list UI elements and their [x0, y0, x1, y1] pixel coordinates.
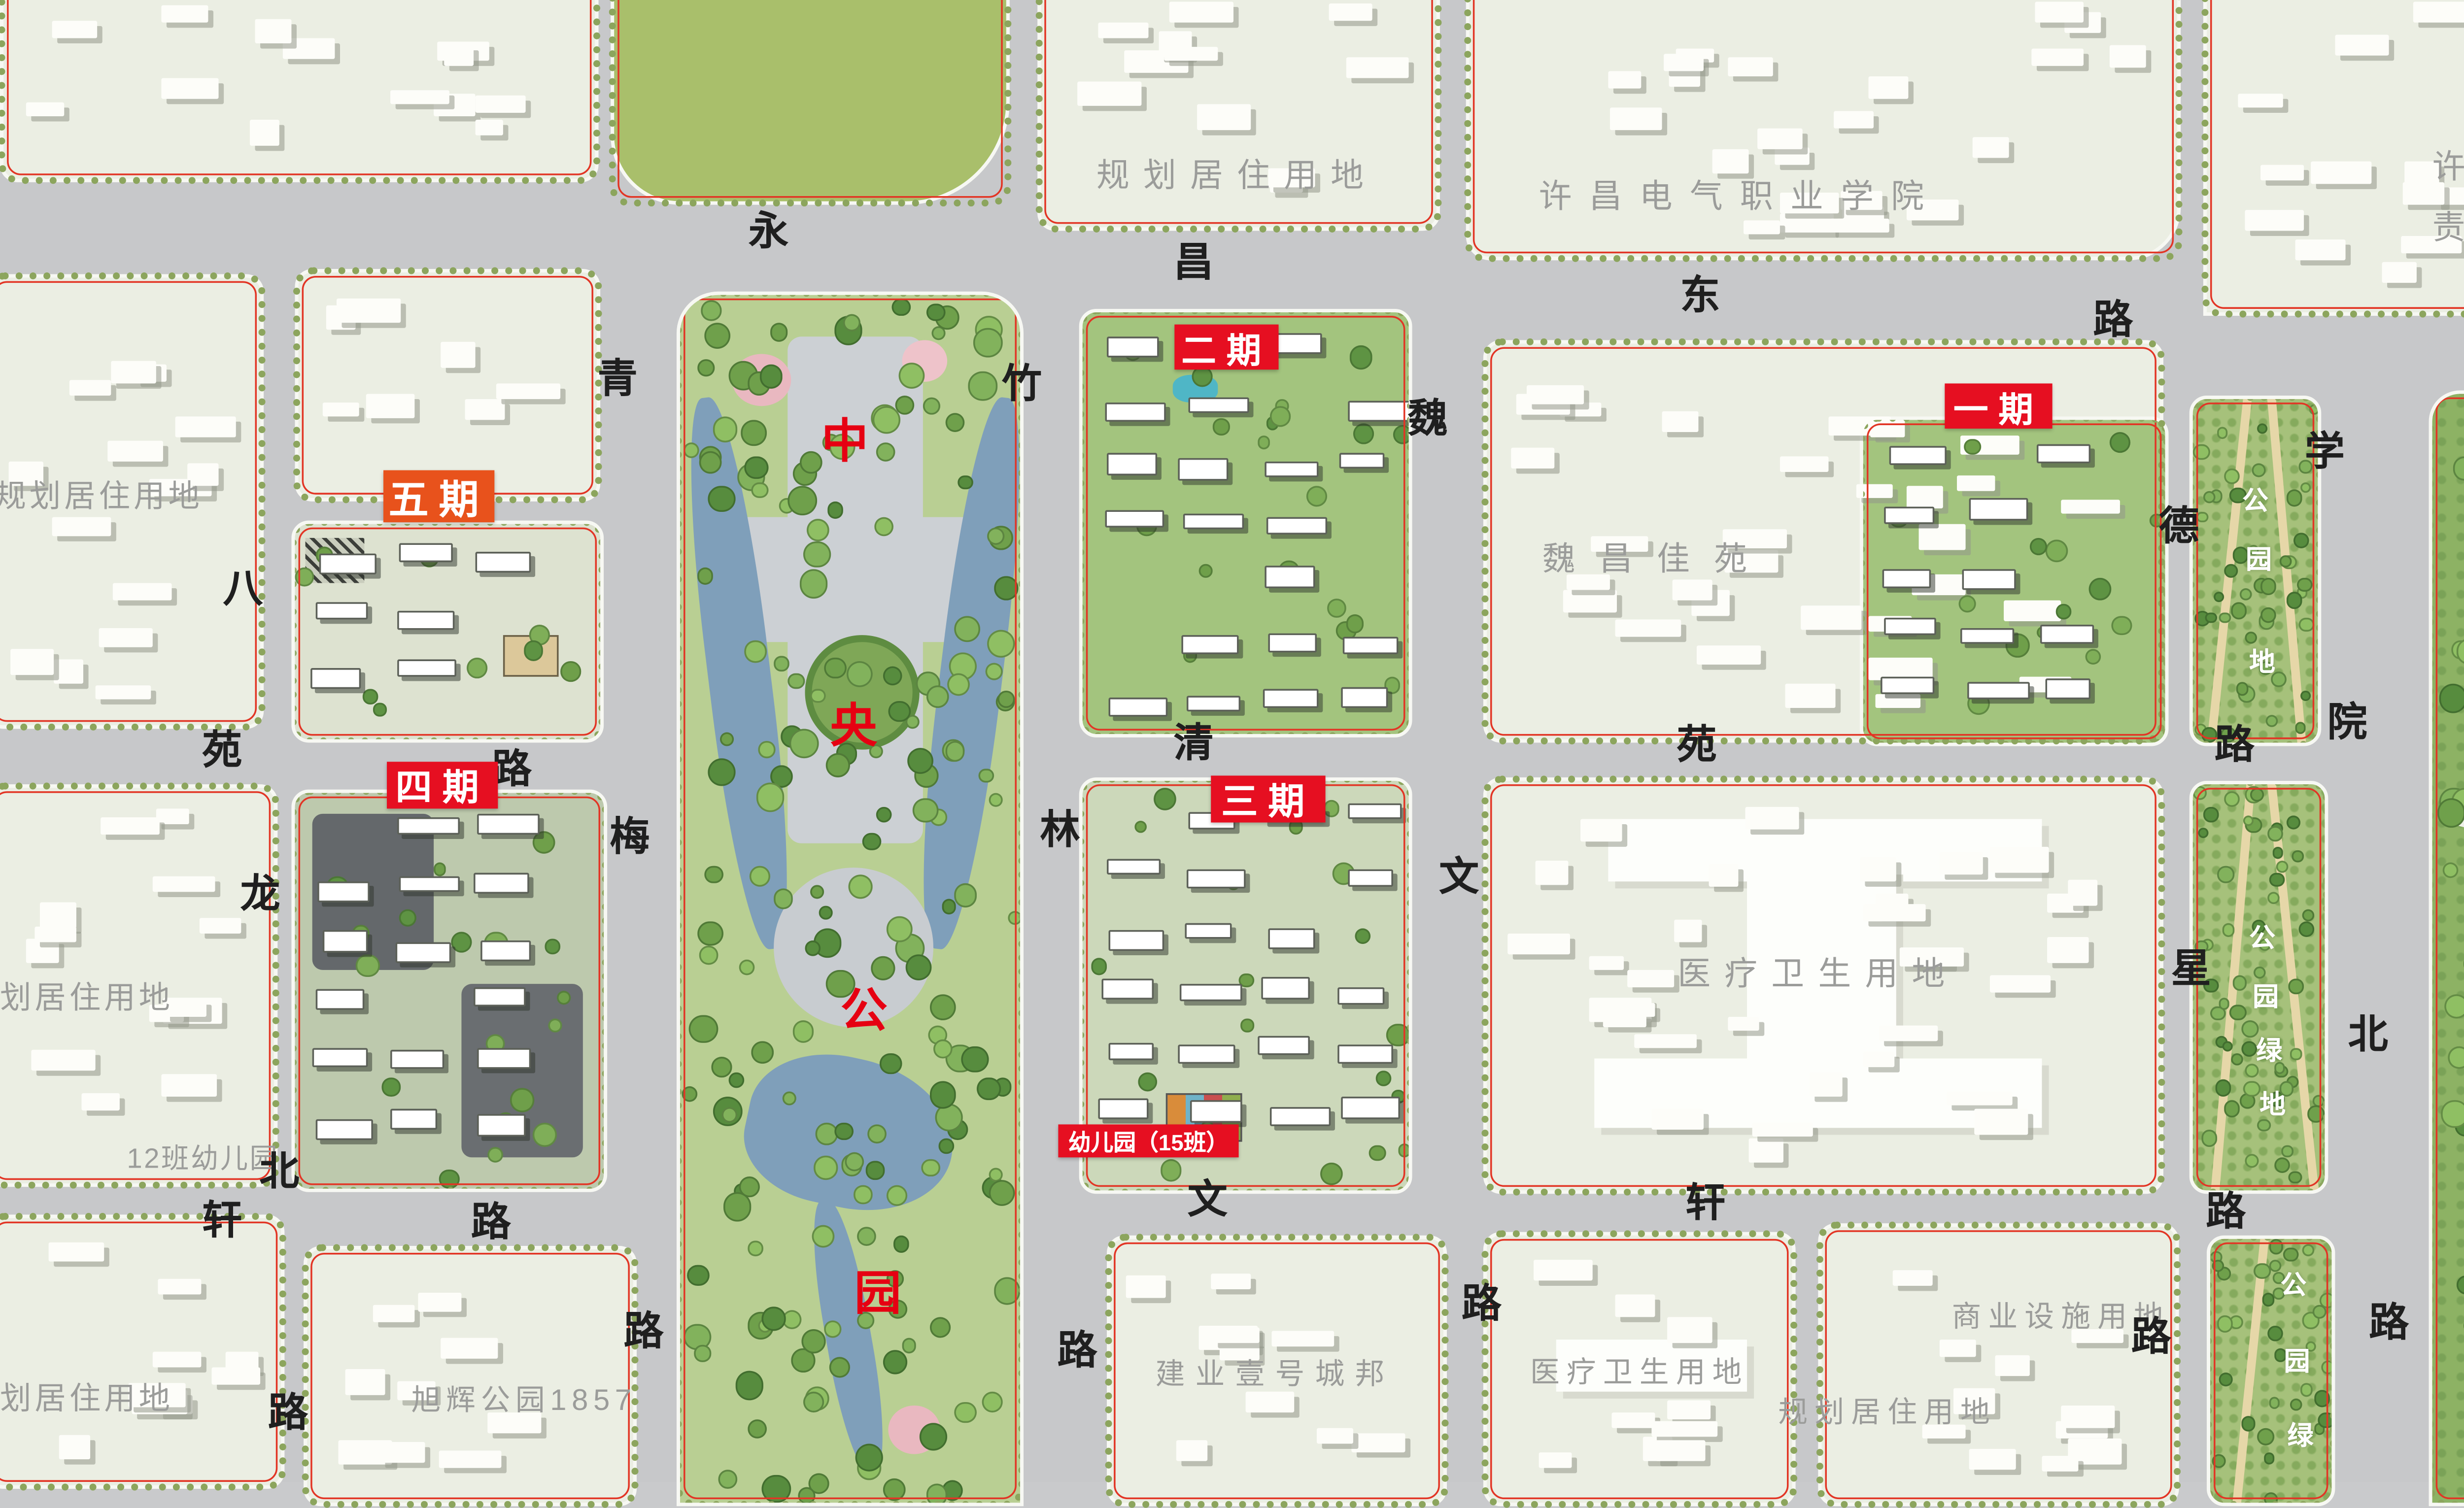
- building-footprint: [1186, 922, 1232, 939]
- building-footprint: [1860, 858, 1896, 882]
- greenbelt-label-char: 园: [2246, 540, 2272, 577]
- building-footprint: [1652, 1420, 1717, 1437]
- building-footprint: [1178, 459, 1229, 481]
- tree: [2263, 1453, 2275, 1465]
- building-footprint: [1709, 863, 1738, 886]
- tree: [356, 954, 380, 978]
- building-footprint: [1651, 1108, 1704, 1130]
- land-use-label: 规划居住用地: [1778, 1387, 1997, 1431]
- building-footprint: [1098, 23, 1149, 38]
- tree: [702, 300, 722, 320]
- building-footprint: [1078, 82, 1142, 105]
- tree: [989, 793, 1003, 807]
- phase-badge: 一期: [1945, 383, 2052, 429]
- tree: [913, 799, 938, 823]
- tree: [2302, 1244, 2315, 1257]
- building-footprint: [2295, 238, 2345, 260]
- building-footprint: [1264, 566, 1314, 588]
- building-footprint: [316, 1119, 373, 1139]
- tree: [1270, 405, 1290, 426]
- land-use-label: 划居住用地: [0, 1374, 173, 1420]
- tree: [2056, 604, 2071, 619]
- tree: [2453, 457, 2464, 480]
- building-footprint: [397, 660, 457, 676]
- building-footprint: [1892, 1270, 1933, 1286]
- road-name-char: 昌: [1174, 229, 1214, 288]
- tree: [988, 630, 1016, 658]
- road-name-char: 轩: [202, 1187, 242, 1246]
- building-footprint: [1674, 920, 1702, 943]
- tree: [745, 457, 768, 480]
- building-footprint: [1673, 579, 1712, 601]
- building-footprint: [1268, 928, 1315, 950]
- tree: [2201, 1130, 2218, 1147]
- tree: [2241, 1416, 2256, 1431]
- building-footprint: [418, 1293, 462, 1312]
- building-footprint: [1267, 633, 1318, 653]
- building-footprint: [2041, 1456, 2078, 1472]
- building-footprint: [10, 649, 54, 674]
- tree: [2232, 975, 2247, 990]
- building-footprint: [107, 441, 162, 461]
- land-use-label: 规划居住用地: [1096, 150, 1377, 197]
- tree: [1958, 595, 1976, 612]
- luming-lake-park: [2429, 390, 2464, 1506]
- building-footprint: [398, 543, 452, 563]
- tree: [548, 1019, 562, 1033]
- building-footprint: [1342, 636, 1399, 654]
- tree: [2211, 1454, 2225, 1468]
- tree: [1369, 1144, 1386, 1161]
- tree: [2442, 1101, 2464, 1128]
- parcel-lawn: [611, 0, 1010, 205]
- building-footprint: [2110, 45, 2147, 67]
- tree: [2276, 860, 2289, 872]
- building-footprint: [1776, 147, 1810, 166]
- building-footprint: [1969, 499, 2027, 520]
- building-footprint: [161, 78, 218, 99]
- building-footprint: [2381, 261, 2416, 283]
- building-footprint: [1668, 1317, 1712, 1342]
- road-name-char: 清: [1174, 710, 1214, 769]
- greenbelt-label-char: 地: [2259, 1085, 2286, 1122]
- tree: [2292, 850, 2303, 862]
- tree: [788, 486, 817, 515]
- greenbelt-label-char: 园: [2253, 978, 2279, 1014]
- tree: [814, 1155, 838, 1179]
- tree: [2257, 423, 2267, 434]
- tree: [711, 1057, 731, 1078]
- tree: [1154, 788, 1177, 811]
- greenbelt-label-char: 公: [2249, 919, 2275, 955]
- building-footprint: [2261, 165, 2304, 180]
- building-footprint: [1833, 110, 1875, 129]
- building-footprint: [2312, 162, 2371, 184]
- building-footprint: [366, 394, 415, 418]
- building-footprint: [1347, 57, 1408, 78]
- tree: [2313, 1306, 2327, 1319]
- tree: [901, 1338, 917, 1353]
- land-use-label: 许昌烟草机械: [2432, 141, 2464, 188]
- building-footprint: [1197, 104, 1251, 130]
- master-plan-map: 规划居住用地许昌电气职业学院许昌烟草机械责任有限公司规划居住用地划居住用地12班…: [0, 0, 2464, 1482]
- greenbelt-label-char: 绿: [2288, 1417, 2314, 1453]
- building-footprint: [1989, 847, 2049, 872]
- road-name-char: 路: [1462, 1270, 1502, 1329]
- land-use-label: 责任有限公司: [2432, 202, 2464, 249]
- tree: [2217, 428, 2227, 438]
- building-footprint: [1628, 970, 1674, 987]
- building-footprint: [69, 379, 110, 396]
- road-name-char: 路: [2215, 711, 2255, 771]
- building-footprint: [374, 1305, 414, 1323]
- road-name-char: 魏: [1408, 385, 1448, 444]
- building-footprint: [1743, 221, 1780, 235]
- tree: [700, 946, 719, 965]
- tree: [2216, 1316, 2232, 1332]
- building-footprint: [2037, 445, 2091, 463]
- building-footprint: [1511, 448, 1554, 469]
- parcel-top-left: [0, 0, 599, 182]
- tree: [749, 866, 770, 887]
- tree: [688, 1265, 709, 1286]
- tree: [2216, 1080, 2231, 1096]
- building-footprint: [310, 668, 360, 689]
- tree: [968, 372, 997, 401]
- tree: [2254, 1263, 2270, 1279]
- tree: [930, 1081, 957, 1108]
- tree: [945, 413, 964, 433]
- building-footprint: [1995, 1355, 2031, 1376]
- building-footprint: [31, 1050, 96, 1071]
- road-name-char: 德: [2159, 493, 2199, 552]
- building-footprint: [1540, 1453, 1572, 1468]
- building-footprint: [1663, 54, 1704, 71]
- tree: [2438, 683, 2464, 712]
- building-footprint: [1108, 1042, 1153, 1060]
- tree: [2267, 827, 2283, 842]
- building-footprint: [1108, 697, 1168, 716]
- building-footprint: [52, 516, 111, 536]
- tree: [2225, 791, 2240, 806]
- central-park-name-char: 园: [855, 1255, 901, 1323]
- tree: [892, 298, 911, 316]
- tree: [988, 1179, 1015, 1206]
- tree: [561, 661, 582, 682]
- tree: [762, 1307, 786, 1331]
- building-footprint: [113, 584, 171, 600]
- building-footprint: [1338, 452, 1384, 469]
- tree: [739, 960, 755, 976]
- parcel-planned-residential-west2: [0, 1215, 284, 1489]
- building-footprint: [1348, 402, 1410, 422]
- tree: [981, 1391, 1003, 1413]
- building-footprint: [1956, 475, 1995, 491]
- building-footprint: [1507, 934, 1570, 954]
- tree: [434, 863, 446, 875]
- tree: [2443, 863, 2459, 878]
- building-footprint: [481, 940, 532, 961]
- tree: [2302, 910, 2315, 922]
- building-footprint: [1212, 1328, 1260, 1343]
- building-footprint: [152, 1352, 202, 1368]
- building-footprint: [1869, 657, 1932, 680]
- building-footprint: [1869, 76, 1909, 98]
- tree: [938, 1138, 954, 1153]
- phase-badge: 三期: [1211, 775, 1325, 822]
- tree: [2085, 649, 2101, 665]
- building-footprint: [477, 1048, 530, 1069]
- building-footprint: [1635, 1034, 1696, 1048]
- tree: [2289, 979, 2304, 994]
- building-footprint: [1189, 1101, 1242, 1123]
- tree: [1350, 345, 1373, 369]
- tree: [2224, 1101, 2240, 1117]
- tree: [979, 769, 993, 783]
- tree: [2274, 1158, 2290, 1174]
- land-use-label: 建业壹号城邦: [1156, 1349, 1395, 1393]
- tree: [556, 991, 571, 1005]
- building-footprint: [1349, 803, 1401, 819]
- tree: [2245, 1153, 2260, 1169]
- tree: [2293, 534, 2309, 549]
- building-footprint: [1863, 1051, 1895, 1067]
- parcel-tobacco-company: [2203, 0, 2464, 316]
- tree: [755, 783, 784, 812]
- road-name-char: 竹: [1002, 350, 1042, 409]
- tree: [927, 303, 945, 321]
- building-footprint: [1257, 1035, 1309, 1054]
- building-footprint: [1875, 693, 1920, 707]
- tree: [866, 1161, 884, 1179]
- tree: [1386, 1023, 1410, 1047]
- building-footprint: [475, 96, 525, 114]
- building-footprint: [1608, 71, 1642, 88]
- building-footprint: [315, 989, 364, 1010]
- road-name-char: 路: [2093, 286, 2133, 345]
- central-park-name-char: 公: [841, 972, 888, 1040]
- road-name-char: 星: [2171, 935, 2211, 994]
- tree: [923, 397, 941, 415]
- tree: [884, 1479, 906, 1502]
- tree: [1134, 820, 1147, 833]
- building-footprint: [474, 988, 526, 1006]
- tree: [770, 323, 787, 341]
- tree: [2268, 1239, 2284, 1254]
- tree: [705, 866, 722, 883]
- building-footprint: [35, 926, 76, 942]
- tree: [363, 689, 378, 704]
- building-footprint: [1316, 1427, 1353, 1443]
- road-name-char: 苑: [202, 717, 242, 776]
- lake: [2445, 403, 2464, 718]
- road-name-char: 北: [2348, 1001, 2388, 1060]
- tree: [2258, 1428, 2275, 1445]
- tree: [2222, 923, 2235, 936]
- building-footprint: [1105, 402, 1166, 422]
- road-name-char: 路: [2369, 1289, 2409, 1348]
- road-name-char: 龙: [240, 861, 280, 920]
- tree: [382, 1078, 401, 1096]
- building-footprint: [478, 1114, 526, 1137]
- tree: [774, 656, 789, 671]
- building-footprint: [1662, 412, 1698, 433]
- building-footprint: [465, 399, 504, 419]
- greenbelt-label-char: 公: [2281, 1266, 2307, 1302]
- building-footprint: [1269, 1107, 1330, 1125]
- tree: [958, 475, 973, 490]
- tree: [2088, 577, 2112, 601]
- tree: [929, 1316, 951, 1338]
- building-footprint: [159, 1278, 202, 1294]
- tree: [1399, 1144, 1411, 1157]
- tree: [487, 1146, 504, 1163]
- tree: [2297, 577, 2312, 592]
- tree: [713, 417, 738, 442]
- building-footprint: [1211, 1274, 1250, 1290]
- building-footprint: [1105, 511, 1163, 528]
- building-footprint: [440, 1338, 498, 1359]
- building-footprint: [1751, 1122, 1813, 1137]
- building-footprint: [1164, 46, 1218, 60]
- tree: [880, 1053, 901, 1074]
- building-footprint: [1884, 617, 1936, 635]
- site-phase5: [291, 521, 604, 743]
- building-footprint: [175, 416, 235, 436]
- tree: [974, 328, 1003, 357]
- tree: [876, 442, 895, 462]
- tree: [2283, 1247, 2298, 1262]
- road-name-char: 苑: [1677, 711, 1716, 771]
- tree: [857, 1227, 876, 1246]
- building-footprint: [442, 341, 475, 367]
- tree: [827, 502, 844, 518]
- building-footprint: [1973, 136, 2008, 158]
- tree: [1346, 615, 1364, 633]
- road-name-char: 院: [2327, 689, 2367, 748]
- building-footprint: [27, 101, 65, 116]
- building-footprint: [2068, 880, 2098, 905]
- building-footprint: [312, 1048, 369, 1068]
- building-footprint: [379, 1442, 424, 1462]
- tree: [798, 1488, 816, 1506]
- tree: [2299, 617, 2314, 632]
- building-footprint: [2004, 601, 2061, 621]
- tree: [2112, 615, 2132, 636]
- tree: [2262, 1294, 2275, 1307]
- greenbelt-label-char: 地: [2249, 643, 2275, 679]
- central-park-name-char: 中: [821, 403, 868, 471]
- tree: [2299, 921, 2315, 937]
- tree: [886, 917, 912, 942]
- building-footprint: [1329, 4, 1373, 22]
- tree: [511, 1088, 535, 1112]
- building-footprint: [101, 816, 159, 835]
- building-footprint: [48, 1242, 103, 1262]
- building-footprint: [398, 876, 460, 892]
- tree: [799, 570, 828, 599]
- building-footprint: [1697, 646, 1762, 664]
- tree: [2202, 491, 2215, 503]
- building-footprint: [54, 659, 83, 684]
- building-footprint: [345, 1370, 385, 1396]
- tree: [440, 1170, 459, 1189]
- road-name-char: 路: [471, 1189, 511, 1248]
- building-footprint: [1609, 108, 1662, 131]
- land-use-label: 许昌电气职业学院: [1539, 171, 1942, 218]
- building-footprint: [1940, 852, 1983, 874]
- tree: [697, 568, 714, 584]
- building-footprint: [1581, 818, 1622, 842]
- tree: [922, 1159, 940, 1177]
- building-footprint: [319, 553, 376, 574]
- tree: [2300, 1383, 2313, 1396]
- tree: [804, 541, 830, 568]
- tree: [2236, 682, 2249, 696]
- building-footprint: [1728, 57, 1774, 77]
- tree: [752, 482, 768, 499]
- building-footprint: [1127, 1276, 1167, 1298]
- greenbelt-label-char: 绿: [2256, 1032, 2282, 1068]
- building-footprint: [250, 120, 278, 146]
- tree: [2272, 847, 2284, 858]
- land-use-label: 医疗卫生用地: [1530, 1347, 1749, 1391]
- tree: [709, 486, 735, 512]
- tree: [926, 1484, 948, 1506]
- building-footprint: [212, 1368, 259, 1384]
- building-footprint: [322, 402, 359, 417]
- building-footprint: [1728, 1017, 1760, 1031]
- tree: [1160, 1159, 1182, 1181]
- tree: [883, 1350, 908, 1374]
- land-use-label: 12班幼儿园: [127, 1135, 279, 1177]
- tree: [1327, 599, 1346, 618]
- tree: [2193, 444, 2210, 461]
- building-footprint: [1616, 620, 1681, 638]
- building-footprint: [317, 881, 370, 903]
- tree: [2268, 1259, 2281, 1272]
- building-footprint: [1880, 676, 1934, 694]
- tree: [1319, 1162, 1342, 1185]
- building-footprint: [1883, 506, 1935, 524]
- building-footprint: [1337, 1044, 1392, 1064]
- building-footprint: [1864, 904, 1925, 922]
- tree: [699, 451, 722, 474]
- tree: [2321, 1360, 2334, 1374]
- tree: [773, 888, 793, 908]
- building-footprint: [2244, 210, 2304, 232]
- tree: [735, 1371, 764, 1400]
- tree: [748, 1241, 763, 1256]
- building-footprint: [1182, 635, 1238, 654]
- building-footprint: [1974, 1109, 2028, 1135]
- greenbelt-label-char: 园: [2284, 1342, 2310, 1378]
- tree: [2308, 404, 2320, 416]
- land-use-label: 医疗卫生用地: [1677, 948, 1958, 995]
- tree: [835, 1122, 853, 1140]
- land-use-label: 规划居住用地: [0, 472, 203, 517]
- tree: [2244, 631, 2257, 644]
- building-footprint: [1107, 336, 1159, 357]
- building-footprint: [2061, 1405, 2114, 1428]
- building-footprint: [1246, 1392, 1295, 1413]
- tree: [945, 742, 965, 762]
- tree: [792, 1020, 814, 1042]
- tree: [863, 833, 881, 850]
- building-footprint: [2414, 2, 2464, 23]
- greenbelt-label-char: 公: [2242, 481, 2268, 518]
- road-name-char: 永: [749, 198, 788, 257]
